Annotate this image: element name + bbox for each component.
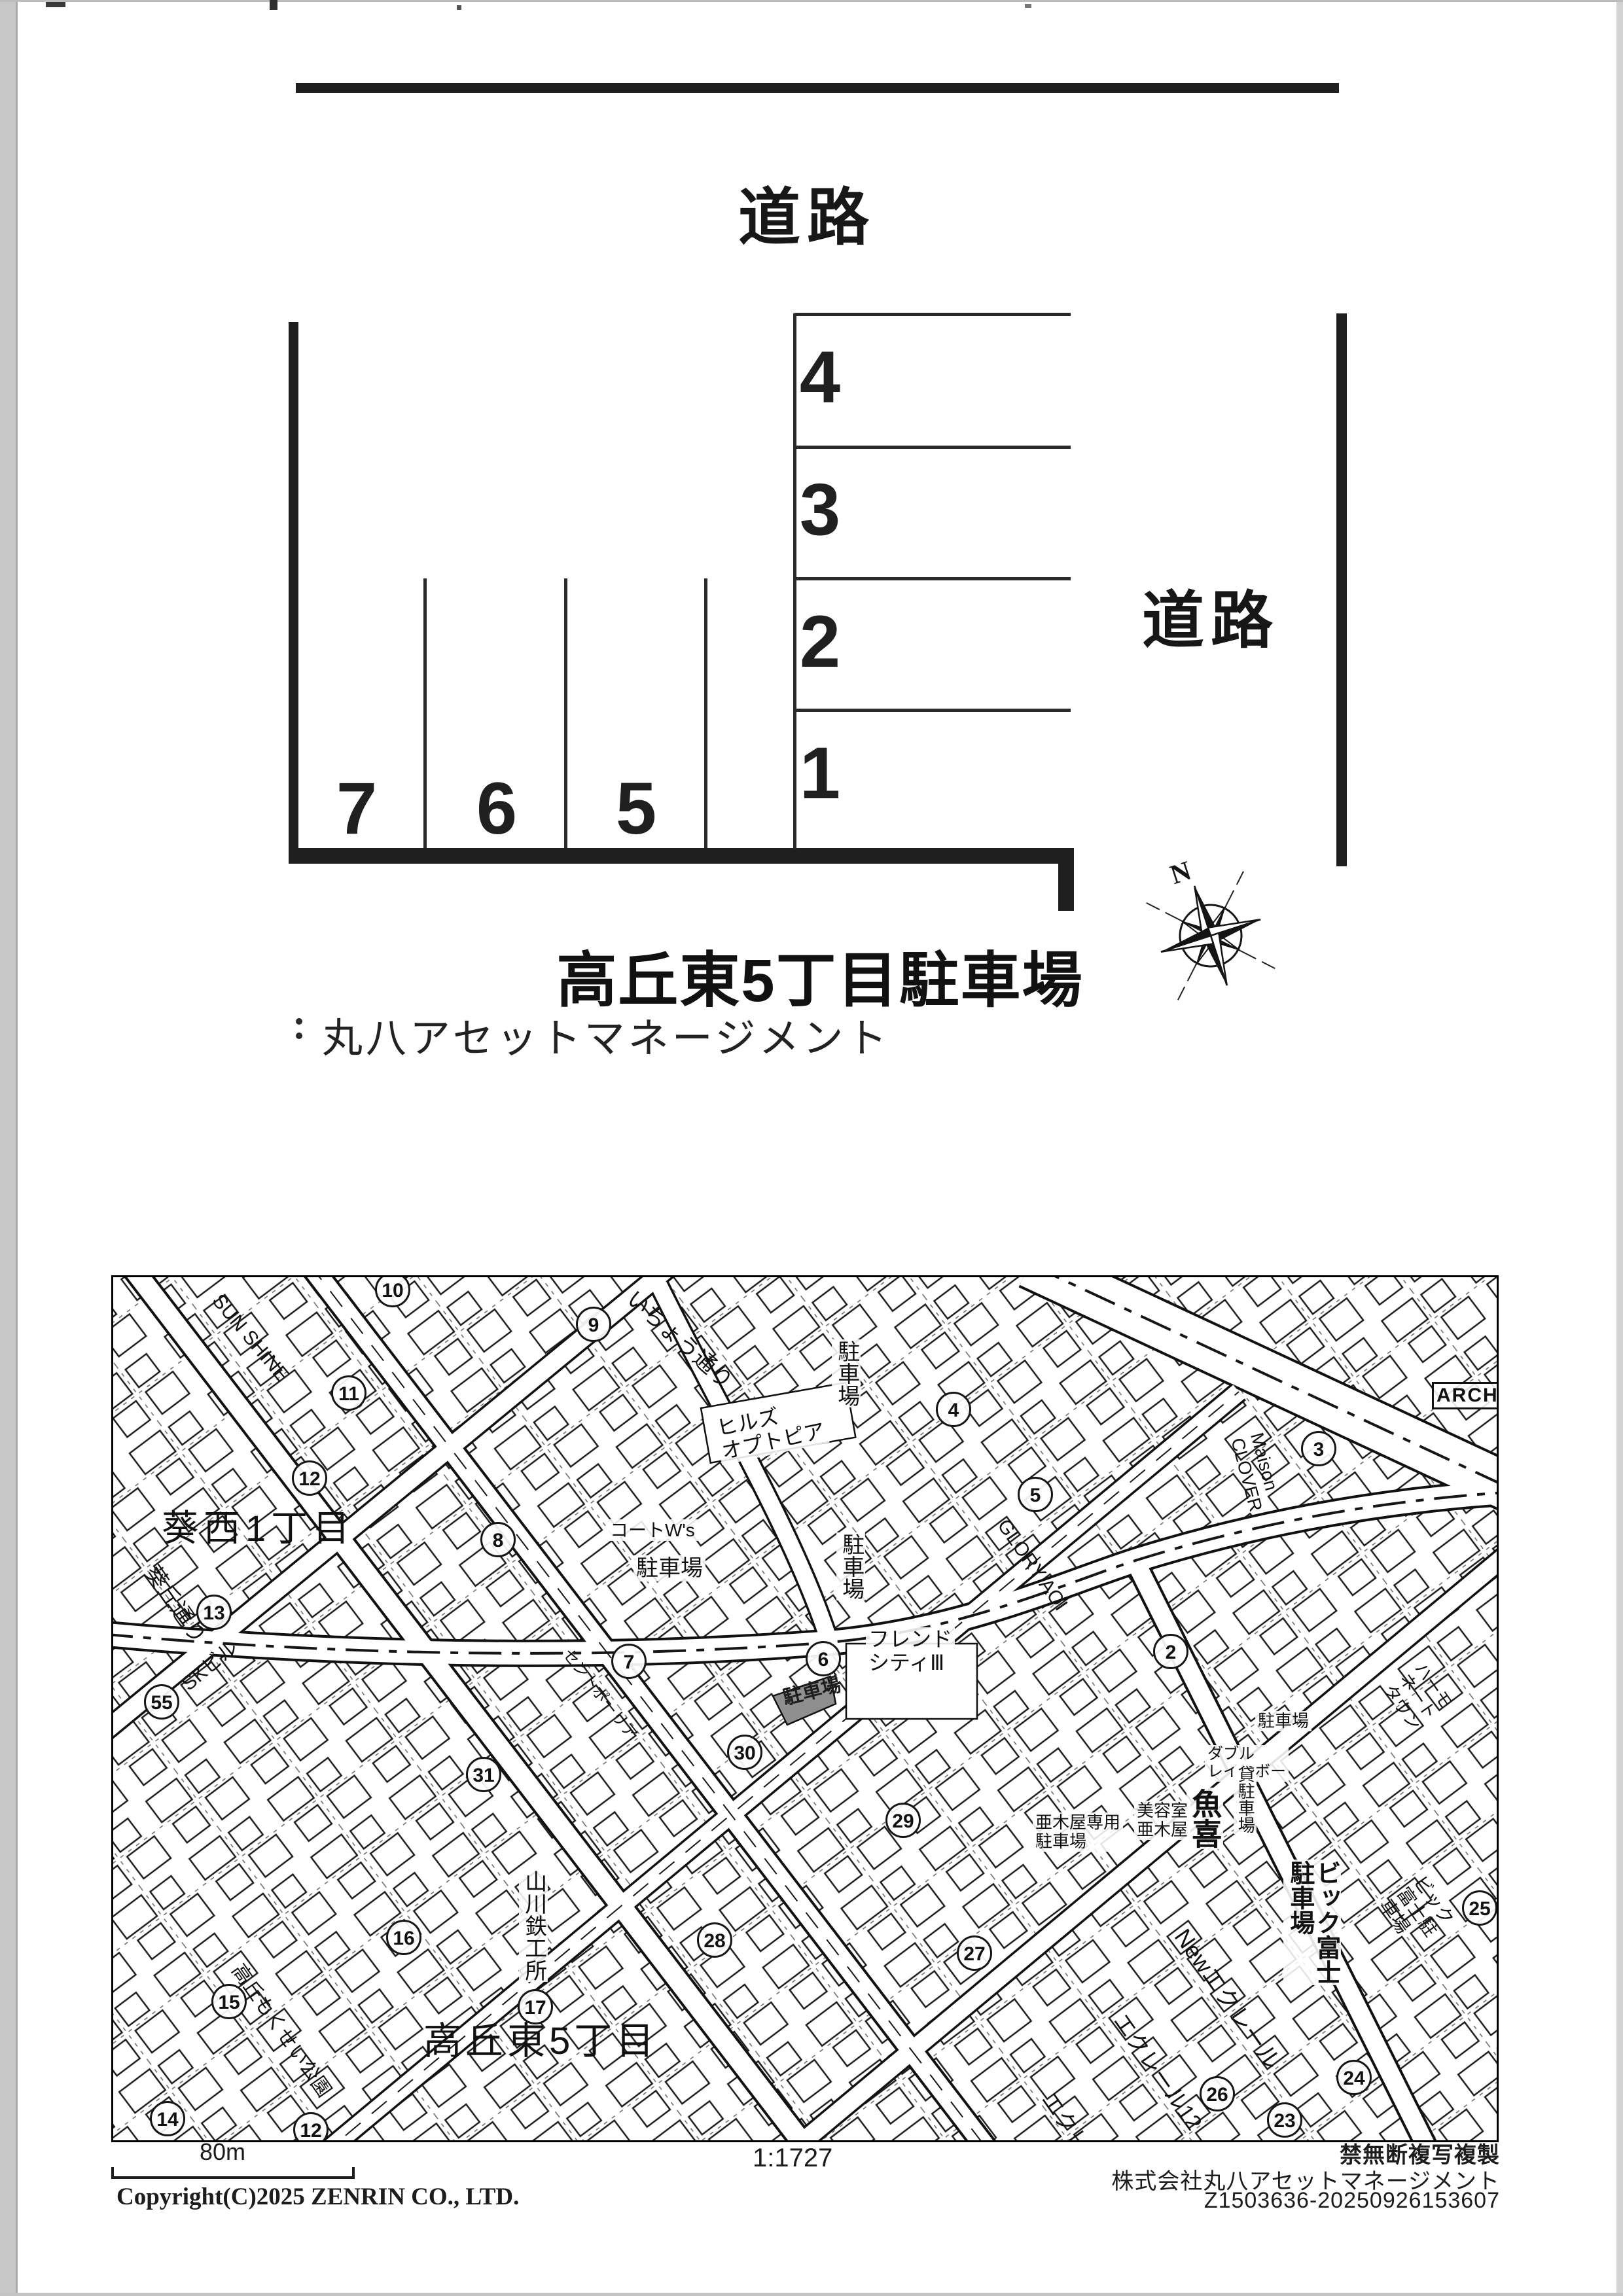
map-circled-number: 6 xyxy=(806,1641,841,1676)
map-parking-label: 駐車場 xyxy=(832,1339,861,1407)
scale-bar-label: 80m xyxy=(111,2138,334,2166)
zenrin-copyright: Copyright(C)2025 ZENRIN CO., LTD. xyxy=(116,2183,519,2211)
stall-number-5: 5 xyxy=(597,772,675,845)
map-district-label: 高丘東5丁目 xyxy=(421,2020,660,2064)
map-parking-label: 亜木屋専用 駐車場 xyxy=(1033,1812,1123,1852)
stall-number-6: 6 xyxy=(457,772,536,845)
map-parking-label: 駐車場 xyxy=(836,1532,865,1600)
scan-speck xyxy=(457,5,461,10)
map-building-label: 魚喜 xyxy=(1186,1788,1223,1849)
map-circled-number: 8 xyxy=(480,1522,516,1557)
map-circled-number: 4 xyxy=(936,1392,971,1427)
scan-edge-bottom xyxy=(0,2293,1623,2296)
stall-number-1: 1 xyxy=(781,737,859,810)
scale-bar xyxy=(111,2167,355,2179)
map-circled-number: 26 xyxy=(1200,2076,1235,2111)
map-parking-label: ビック富士 駐車場 xyxy=(1283,1860,1341,1985)
map-building-label: ARCH xyxy=(1432,1382,1499,1409)
scan-edge-right xyxy=(1616,0,1623,2296)
map-circled-number: 23 xyxy=(1267,2102,1302,2138)
scale-ratio: 1:1727 xyxy=(753,2144,832,2173)
stall-divider xyxy=(564,578,567,848)
map-circled-number: 13 xyxy=(196,1595,232,1630)
stall-line xyxy=(794,709,1071,712)
map-circled-number: 55 xyxy=(144,1684,179,1720)
stall-number-7: 7 xyxy=(317,772,396,845)
lot-bottom-wall xyxy=(289,848,1074,864)
company-mark-icon xyxy=(296,1033,302,1039)
compass-north-label: N xyxy=(1167,856,1195,891)
map-circled-number: 27 xyxy=(957,1935,992,1971)
map-district-label: 葵西1丁目 xyxy=(159,1508,357,1550)
road-label-right: 道路 xyxy=(1080,571,1342,660)
scan-edge-left xyxy=(0,0,16,2296)
map-building-label: フレンド シティⅢ xyxy=(866,1627,955,1676)
map-building-label: コートW's xyxy=(607,1519,698,1541)
map-circled-number: 25 xyxy=(1462,1890,1497,1926)
map-circled-number: 11 xyxy=(331,1375,366,1411)
area-map: 葵西1丁目 高丘東5丁目 葵丘通り いちょう通り SUN SHINE 駐車場 駐… xyxy=(111,1275,1499,2142)
stall-line xyxy=(794,577,1071,580)
compass-rose-icon: N xyxy=(1126,851,1296,1021)
map-building-label: 山川鉄工所 xyxy=(519,1869,548,1982)
map-parking-label: 貸駐車場 xyxy=(1234,1765,1257,1834)
map-circled-number: 17 xyxy=(518,1989,553,2024)
stall-number-4: 4 xyxy=(781,341,859,414)
lot-bottom-notch xyxy=(1058,864,1074,911)
scan-speck xyxy=(1025,4,1031,8)
stall-number-3: 3 xyxy=(781,473,859,546)
map-parking-label: 駐車場 xyxy=(1255,1711,1311,1731)
map-building-label: 美容室 亜木屋 xyxy=(1134,1801,1190,1840)
map-circled-number: 31 xyxy=(466,1757,501,1792)
company-mark-icon xyxy=(296,1018,302,1025)
map-circled-number: 15 xyxy=(211,1984,247,2019)
diagram-top-road-line xyxy=(296,83,1339,93)
scan-edge-left-line xyxy=(16,0,18,2296)
map-circled-number: 3 xyxy=(1301,1431,1336,1466)
stall-line xyxy=(794,313,1071,316)
stall-number-2: 2 xyxy=(781,605,859,679)
map-circled-number: 24 xyxy=(1336,2060,1372,2095)
stall-divider xyxy=(704,578,707,848)
map-parking-label: 駐車場 xyxy=(633,1555,705,1581)
scan-speck xyxy=(270,0,277,10)
map-circled-number: 7 xyxy=(611,1644,647,1679)
stall-line xyxy=(794,446,1071,449)
map-circled-number: 29 xyxy=(885,1803,921,1838)
map-circled-number: 14 xyxy=(150,2101,185,2136)
lot-left-wall xyxy=(289,322,298,864)
map-circled-number: 12 xyxy=(292,1460,327,1496)
road-label-top: 道路 xyxy=(676,168,938,257)
scan-speck xyxy=(46,2,65,7)
scanned-parking-document: 道路 道路 4 3 2 1 7 6 5 xyxy=(0,0,1623,2296)
stall-divider xyxy=(423,578,427,848)
footer-document-code: Z1503636-20250926153607 xyxy=(1204,2188,1500,2214)
map-circled-number: 16 xyxy=(386,1920,421,1955)
map-circled-number: 28 xyxy=(697,1922,732,1958)
management-company: 丸八アセットマネージメント xyxy=(322,1005,891,1064)
scan-edge-top xyxy=(0,0,1623,2)
map-circled-number: 30 xyxy=(727,1735,762,1770)
map-circled-number: 2 xyxy=(1153,1634,1188,1669)
map-circled-number: 5 xyxy=(1018,1477,1053,1512)
map-circled-number: 9 xyxy=(576,1307,611,1342)
